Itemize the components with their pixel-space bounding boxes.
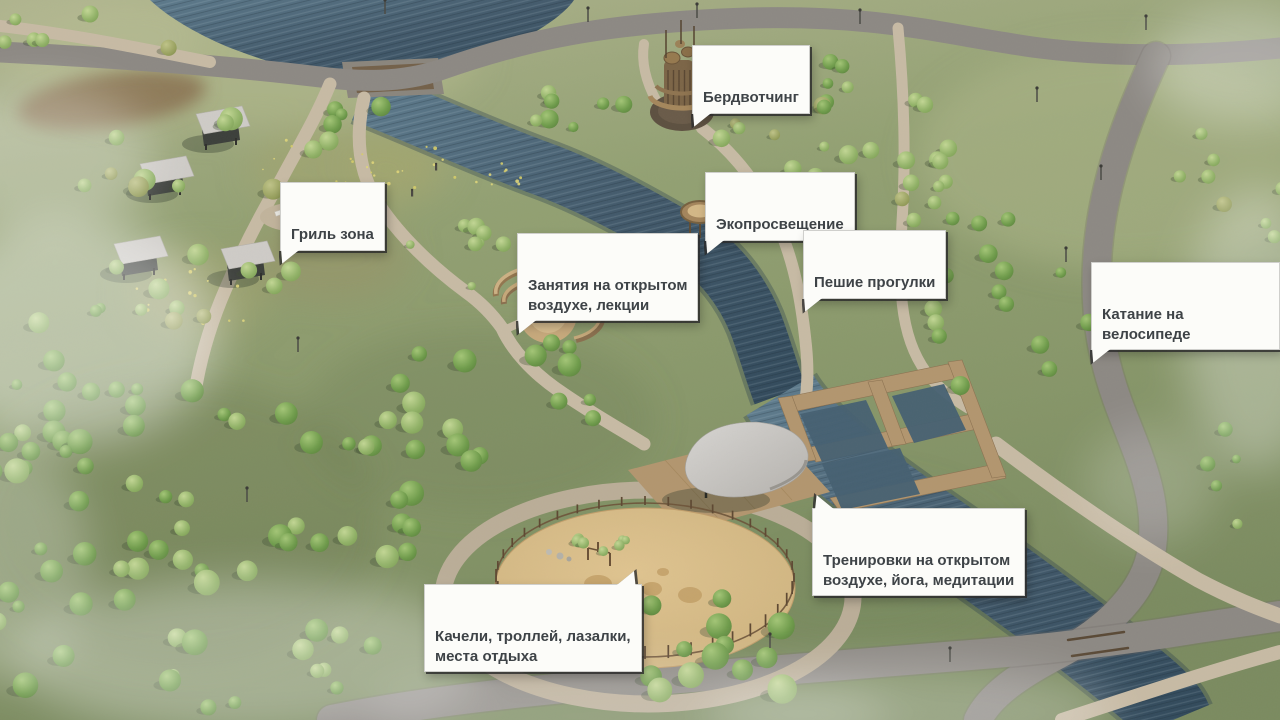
callout-walking: Пешие прогулки [803, 230, 946, 299]
callout-label: Катание на велосипеде [1102, 306, 1191, 342]
callout-outdoor-classes: Занятия на открытом воздухе, лекции [517, 233, 698, 321]
park-map-render: Бердвотчинг Гриль зона Экопросвещение За… [0, 0, 1280, 720]
callout-label: Гриль зона [291, 226, 374, 243]
callout-label: Пешие прогулки [814, 274, 935, 291]
callout-label: Бердвотчинг [703, 89, 799, 106]
callout-birdwatching: Бердвотчинг [692, 45, 810, 114]
callout-playground: Качели, троллей, лазалки, места отдыха [424, 584, 642, 672]
callout-label: Занятия на открытом воздухе, лекции [528, 277, 687, 313]
callout-label: Качели, троллей, лазалки, места отдыха [435, 628, 631, 664]
callout-cycling: Катание на велосипеде [1091, 262, 1280, 350]
callout-outdoor-training: Тренировки на открытом воздухе, йога, ме… [812, 508, 1025, 596]
callout-grill-zone: Гриль зона [280, 182, 385, 251]
callout-label: Тренировки на открытом воздухе, йога, ме… [823, 552, 1014, 588]
